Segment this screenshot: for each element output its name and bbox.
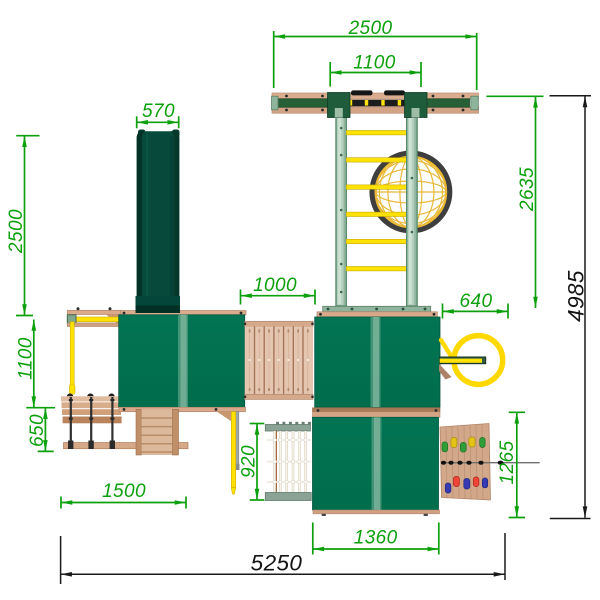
svg-text:1000: 1000: [253, 275, 297, 296]
svg-text:1265: 1265: [497, 441, 518, 485]
svg-text:2500: 2500: [6, 209, 27, 254]
svg-text:5250: 5250: [251, 551, 303, 576]
svg-text:1500: 1500: [102, 481, 146, 502]
svg-text:2500: 2500: [348, 18, 393, 39]
svg-text:1100: 1100: [15, 337, 36, 379]
svg-text:1100: 1100: [353, 53, 395, 74]
svg-text:640: 640: [460, 291, 493, 312]
svg-text:920: 920: [239, 445, 260, 478]
svg-text:570: 570: [142, 101, 175, 122]
svg-text:650: 650: [27, 414, 48, 447]
svg-text:2635: 2635: [517, 167, 538, 212]
svg-text:4985: 4985: [564, 270, 589, 322]
svg-text:1360: 1360: [354, 528, 398, 549]
